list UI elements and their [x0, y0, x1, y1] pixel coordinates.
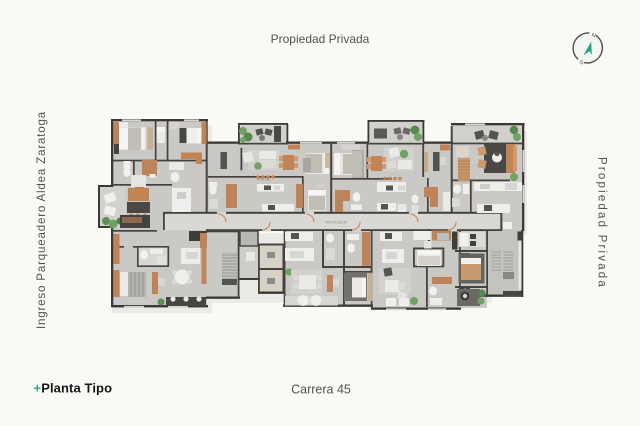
svg-text:Ingreso Parqueadero Aldea Zara: Ingreso Parqueadero Aldea Zaratoga: [35, 111, 48, 329]
svg-text:Carrera 45: Carrera 45: [291, 383, 351, 397]
svg-text:+Planta Tipo: +Planta Tipo: [34, 381, 113, 396]
svg-text:Propiedad Privada: Propiedad Privada: [271, 32, 370, 46]
svg-text:44.50 M2: 44.50 M2: [379, 177, 392, 181]
svg-text:44.50 M2: 44.50 M2: [257, 178, 270, 182]
svg-text:CIRCULACION: CIRCULACION: [325, 221, 348, 225]
svg-text:Propiedad Privada: Propiedad Privada: [596, 157, 608, 289]
